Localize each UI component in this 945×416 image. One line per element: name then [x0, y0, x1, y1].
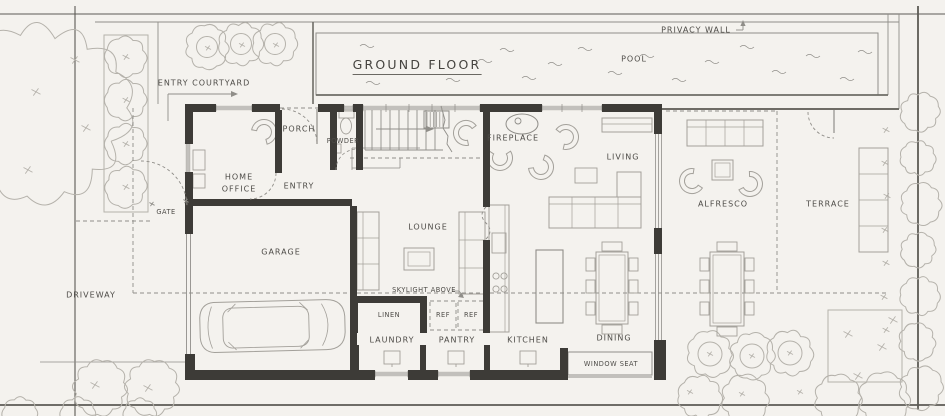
label-lounge: LOUNGE: [408, 223, 448, 232]
label-skylight-above: SKYLIGHT ABOVE: [392, 286, 456, 294]
label-pool: POOL: [621, 55, 647, 64]
label-dining: DINING: [596, 334, 631, 343]
label-pantry: PANTRY: [439, 336, 476, 345]
drawing-title: GROUND FLOOR: [353, 57, 482, 75]
label-laundry: LAUNDRY: [369, 336, 414, 345]
label-terrace: TERRACE: [806, 200, 850, 209]
label-home-office: HOME OFFICE: [210, 172, 268, 197]
label-powder: POWDER: [327, 137, 360, 145]
label-window-seat: WINDOW SEAT: [584, 360, 638, 368]
label-fireplace: FIREPLACE: [487, 134, 539, 143]
plan-labels: GROUND FLOOR PRIVACY WALL POOL ENTRY COU…: [0, 0, 945, 416]
label-entry-courtyard: ENTRY COURTYARD: [158, 79, 250, 88]
label-privacy-wall: PRIVACY WALL: [661, 26, 731, 35]
label-kitchen: KITCHEN: [507, 336, 549, 345]
label-gate: GATE: [156, 208, 175, 216]
label-living: LIVING: [607, 153, 640, 162]
label-linen: LINEN: [378, 311, 400, 319]
label-ref-left: REF: [436, 311, 450, 319]
label-entry: ENTRY: [284, 182, 315, 191]
label-driveway: DRIVEWAY: [66, 291, 116, 300]
floor-plan-canvas: GROUND FLOOR PRIVACY WALL POOL ENTRY COU…: [0, 0, 945, 416]
label-porch: PORCH: [283, 125, 316, 134]
label-alfresco: ALFRESCO: [698, 200, 748, 209]
label-garage: GARAGE: [261, 248, 301, 257]
label-ref-right: REF: [464, 311, 478, 319]
